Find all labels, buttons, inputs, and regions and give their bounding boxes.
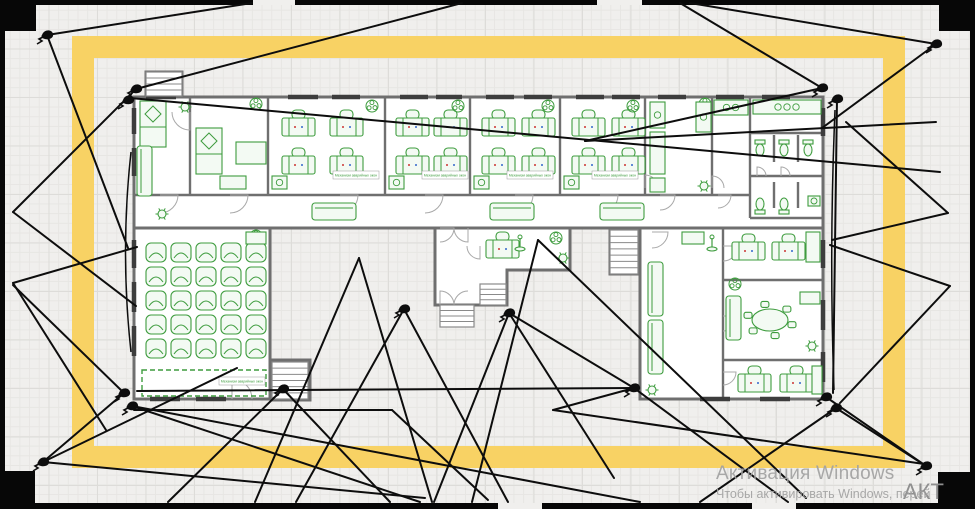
counter-symbol bbox=[474, 176, 489, 189]
counter-symbol bbox=[220, 176, 246, 189]
classroom-chair-symbol bbox=[221, 267, 241, 286]
classroom-chair-symbol bbox=[146, 339, 166, 358]
classroom-chair-symbol bbox=[221, 291, 241, 310]
camera-view-cone bbox=[283, 389, 390, 502]
stairs-symbol bbox=[480, 284, 506, 305]
classroom-chair-symbol bbox=[171, 315, 191, 334]
toilet-symbol bbox=[755, 198, 765, 214]
classroom-chair-symbol bbox=[196, 243, 216, 262]
camera-view-cone bbox=[634, 388, 788, 502]
counter-symbol bbox=[389, 176, 404, 189]
classroom-chair-symbol bbox=[246, 339, 266, 358]
classroom-chair-symbol bbox=[221, 339, 241, 358]
camera-view-cone bbox=[434, 313, 509, 502]
bed-symbol bbox=[140, 101, 166, 147]
cctv-camera-icon bbox=[118, 95, 134, 109]
svg-text:Механизм аварийных окон: Механизм аварийных окон bbox=[594, 174, 636, 178]
corridor-bench-symbol bbox=[312, 203, 356, 220]
svg-text:Механизм аварийных окон: Механизм аварийных окон bbox=[221, 380, 263, 384]
camera-view-cone bbox=[47, 3, 252, 35]
classroom-chair-symbol bbox=[171, 291, 191, 310]
svg-text:Механизм аварийных окон: Механизм аварийных окон bbox=[424, 174, 466, 178]
table-symbol bbox=[682, 232, 704, 244]
cctv-camera-icon bbox=[33, 457, 49, 471]
corridor-bench-symbol bbox=[600, 203, 644, 220]
classroom-chair-symbol bbox=[171, 267, 191, 286]
toilet-symbol bbox=[779, 198, 789, 214]
classroom-chair-symbol bbox=[196, 315, 216, 334]
table-symbol bbox=[812, 366, 822, 394]
fence-corner-post bbox=[0, 0, 36, 31]
classroom-chair-symbol bbox=[246, 267, 266, 286]
svg-text:Механизм аварийных окон: Механизм аварийных окон bbox=[509, 174, 551, 178]
sofa-symbol bbox=[726, 296, 741, 340]
sofa-symbol bbox=[648, 262, 663, 316]
fence-corner-post bbox=[5, 471, 35, 504]
classroom-chair-symbol bbox=[221, 243, 241, 262]
room-label-box: Механизм аварийных окон bbox=[507, 171, 553, 179]
camera-view-cone bbox=[13, 285, 124, 393]
classroom-chair-symbol bbox=[146, 267, 166, 286]
table-symbol bbox=[236, 142, 266, 164]
fence-corner-post bbox=[939, 0, 975, 31]
counter-symbol bbox=[696, 102, 711, 132]
fence-corner-post bbox=[938, 472, 975, 509]
camera-view-cone bbox=[509, 313, 634, 388]
table-symbol bbox=[246, 232, 266, 244]
room-label-box: Механизм аварийных окон bbox=[422, 171, 468, 179]
camera-view-cone bbox=[168, 389, 283, 502]
classroom-chair-symbol bbox=[246, 243, 266, 262]
camera-view-cone bbox=[404, 309, 508, 502]
table-symbol bbox=[800, 292, 820, 304]
classroom-chair-symbol bbox=[196, 267, 216, 286]
classroom-chair-symbol bbox=[221, 315, 241, 334]
corridor-bench-symbol bbox=[490, 203, 534, 220]
toilet-symbol bbox=[755, 140, 765, 156]
counter-symbol bbox=[272, 176, 287, 189]
camera-view-cone bbox=[553, 388, 634, 410]
classroom-chair-symbol bbox=[146, 291, 166, 310]
classroom-chair-symbol bbox=[171, 339, 191, 358]
stairs-symbol bbox=[610, 230, 638, 274]
sofa-symbol bbox=[137, 146, 152, 196]
svg-text:Механизм аварийных окон: Механизм аварийных окон bbox=[335, 174, 377, 178]
stairs-symbol bbox=[440, 305, 474, 327]
classroom-chair-symbol bbox=[246, 315, 266, 334]
bed-symbol bbox=[196, 128, 222, 174]
cad-canvas: Механизм аварийных оконМеханизм аварийны… bbox=[0, 0, 975, 509]
site-plan-svg: Механизм аварийных оконМеханизм аварийны… bbox=[0, 0, 975, 509]
toilet-symbol bbox=[803, 140, 813, 156]
counter-symbol bbox=[650, 178, 665, 192]
cctv-camera-icon bbox=[114, 388, 130, 402]
cctv-camera-icon bbox=[926, 39, 942, 53]
classroom-chair-symbol bbox=[146, 243, 166, 262]
room-label-box: Механизм аварийных окон bbox=[592, 171, 638, 179]
cctv-camera-icon bbox=[122, 401, 138, 415]
classroom-chair-symbol bbox=[171, 243, 191, 262]
classroom-chair-symbol bbox=[146, 315, 166, 334]
classroom-chair-symbol bbox=[246, 291, 266, 310]
sink-symbol bbox=[808, 196, 820, 206]
counter-symbol bbox=[564, 176, 579, 189]
classroom-chair-symbol bbox=[196, 339, 216, 358]
classroom-chair-symbol bbox=[196, 291, 216, 310]
cctv-camera-icon bbox=[826, 403, 842, 417]
table-symbol bbox=[806, 232, 820, 262]
toilet-symbol bbox=[779, 140, 789, 156]
camera-view-cone bbox=[296, 309, 404, 502]
room-label-box: Механизм аварийных окон bbox=[219, 377, 265, 385]
cctv-camera-icon bbox=[827, 94, 843, 108]
room-label-box: Механизм аварийных окон bbox=[333, 171, 379, 179]
